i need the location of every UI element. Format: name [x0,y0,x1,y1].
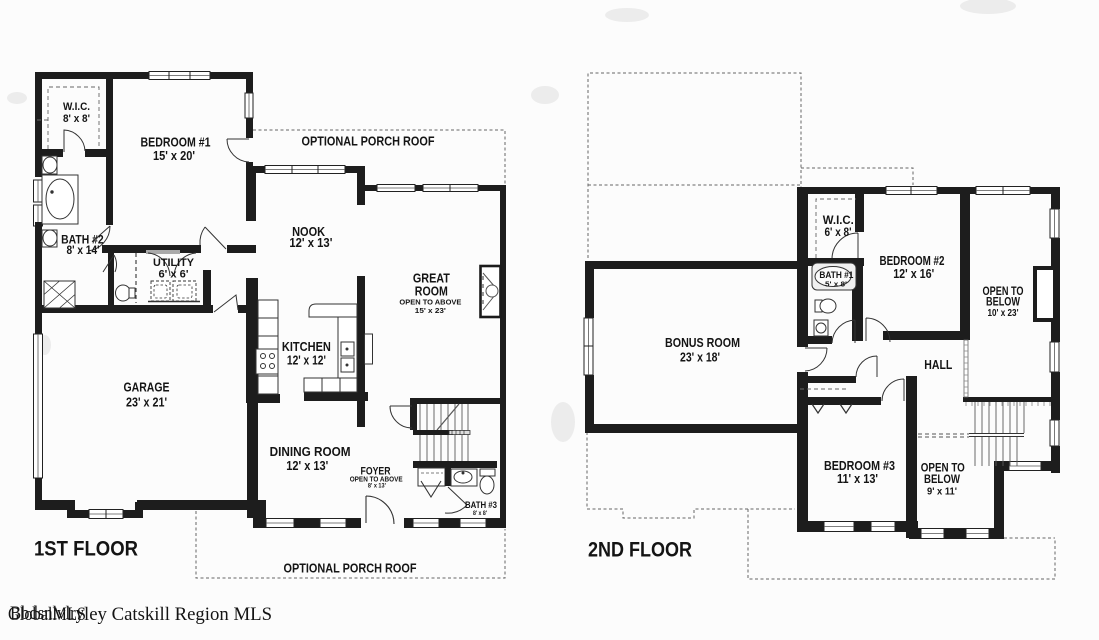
svg-text:12' x 13': 12' x 13' [289,235,332,250]
svg-text:BATH #3: BATH #3 [465,500,497,511]
svg-text:15' x 23': 15' x 23' [415,306,446,315]
svg-text:HALL: HALL [924,357,952,372]
svg-text:11' x 13': 11' x 13' [837,471,878,486]
svg-text:23' x 21': 23' x 21' [126,395,167,410]
svg-text:BATH #1: BATH #1 [819,270,853,280]
svg-text:BONUS ROOM: BONUS ROOM [665,335,740,350]
svg-text:UTILITY: UTILITY [153,257,195,269]
svg-text:W.I.C.: W.I.C. [63,101,90,113]
svg-text:5' x 8': 5' x 8' [825,280,847,289]
svg-text:12' x 12': 12' x 12' [287,353,326,368]
svg-text:BELOW: BELOW [924,472,961,486]
svg-text:12' x 16': 12' x 16' [893,266,934,281]
svg-text:ROOM: ROOM [415,284,448,299]
svg-text:8' x 8': 8' x 8' [473,511,487,517]
svg-text:8' x 14': 8' x 14' [67,245,100,257]
svg-text:OPTIONAL PORCH ROOF: OPTIONAL PORCH ROOF [284,561,417,576]
svg-text:23' x 18': 23' x 18' [680,350,720,365]
svg-text:2ND FLOOR: 2ND FLOOR [588,539,692,562]
svg-text:6' x 6': 6' x 6' [159,269,189,281]
svg-text:ley Catskill Region MLS: ley Catskill Region MLS [84,604,272,625]
svg-text:W.I.C.: W.I.C. [823,215,854,227]
svg-text:1ST FLOOR: 1ST FLOOR [34,538,138,561]
svg-text:9' x 11': 9' x 11' [927,486,957,498]
svg-text:6' x 8': 6' x 8' [825,227,852,239]
svg-text:12' x 13': 12' x 13' [286,458,328,473]
svg-text:10' x 23': 10' x 23' [988,307,1019,319]
svg-text:8' x 8': 8' x 8' [63,113,90,125]
svg-text:15' x 20': 15' x 20' [153,148,195,163]
svg-text:DINING ROOM: DINING ROOM [270,444,351,459]
svg-text:8' x 13': 8' x 13' [368,483,386,490]
svg-text:Bbdsnlvlry: Bbdsnlvlry [10,603,84,624]
svg-text:GARAGE: GARAGE [124,380,170,395]
svg-text:OPTIONAL PORCH ROOF: OPTIONAL PORCH ROOF [302,134,435,149]
